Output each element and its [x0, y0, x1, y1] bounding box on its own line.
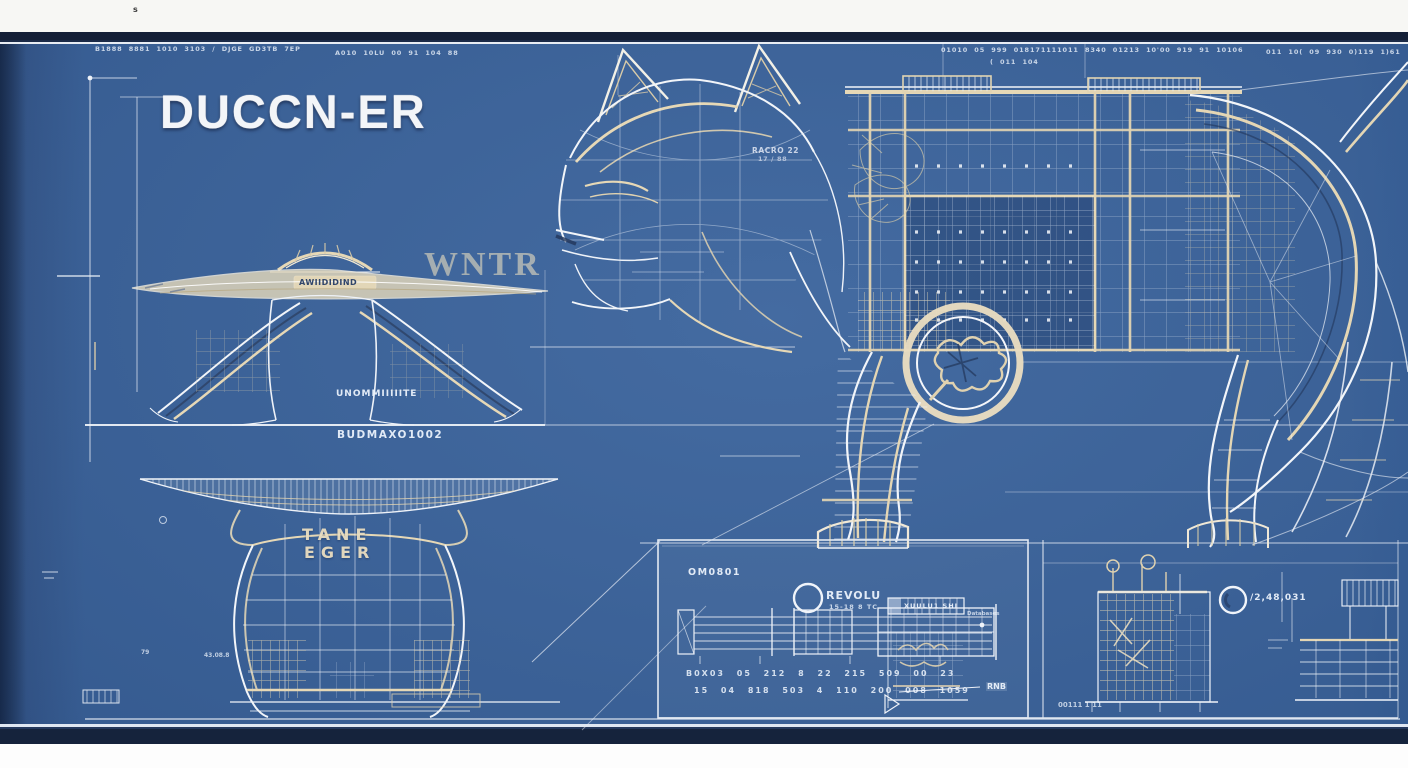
head-callout-line1: RACRO 22	[752, 146, 799, 155]
panel-main-circle-sublabel: 15-18 8 TC	[829, 603, 878, 611]
side-view-dome-label: AWIIDIDIND	[299, 278, 357, 287]
side-view-bottom-label: BUDMAXO1002	[337, 429, 443, 441]
panel-main-dim-label: RNB	[986, 682, 1007, 691]
cat-body	[810, 76, 1242, 352]
annotation-top-left-2: A010 10LU 00 91 104 88	[335, 49, 459, 57]
panel-main-title: OM0801	[688, 567, 741, 578]
drawing-title: DUCCN-ER	[160, 84, 427, 139]
front-view-block-label-2: EGER	[304, 543, 375, 562]
annotation-top-far-right: 011 10( 09 930 0)119 1)61	[1266, 48, 1401, 56]
side-view-watermark: WNTR	[424, 246, 542, 284]
head-callout-line2: 17 / 88	[758, 155, 799, 163]
panel-main-strip-note: Databases	[967, 611, 1000, 617]
annotation-top-right-2: ( 011 104	[990, 58, 1039, 66]
annotation-top-left-1: B1888 8881 1010 3103 / DJGE GD3TB 7EP	[95, 45, 301, 53]
head-callout: RACRO 22 17 / 88	[752, 146, 799, 163]
front-view-block-label-1: TANE	[302, 525, 372, 544]
panel-main-table-row: 15 04 818 503 4 110 200 008 1059	[694, 686, 970, 695]
margin-mark: s	[133, 5, 138, 14]
blueprint-page: s B1888 8881 1010 3103 / DJGE GD3TB 7EP …	[0, 0, 1408, 768]
front-elevation	[42, 479, 560, 717]
panel-main-circle-label: REVOLU	[826, 589, 881, 602]
panel-main-strip-label: XUULU1 SHI	[904, 602, 958, 610]
front-view-axis-mark: 79	[141, 649, 149, 656]
annotation-top-right-1: 01010 05 999 018171111011 8340 01213 10'…	[941, 46, 1243, 54]
panel-main-table-row: B0X03 05 212 8 22 215 509 00 23	[686, 669, 955, 678]
side-view-mid-label: UNOMMIIIIITE	[336, 389, 417, 399]
panel-right-circle-label: /2,48,031	[1250, 593, 1307, 603]
panel-right-base-label: 00111 1 11	[1058, 701, 1102, 709]
front-view-tiny-label: 43.08.8	[204, 652, 229, 659]
cat-hindquarters	[1185, 62, 1408, 548]
cat-head	[556, 46, 850, 352]
